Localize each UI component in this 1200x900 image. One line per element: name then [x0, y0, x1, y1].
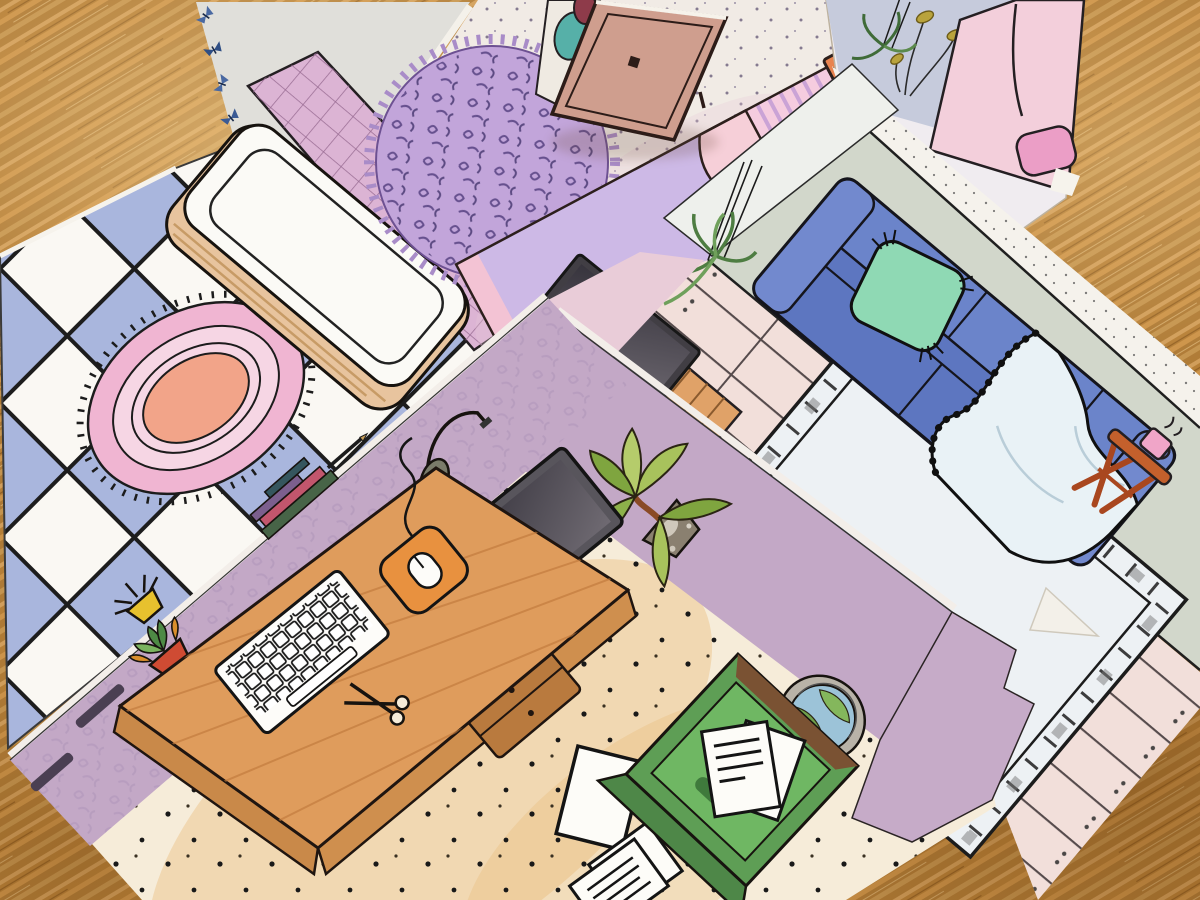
dollhouse-photo [0, 0, 1200, 900]
wardrobe [536, 0, 726, 160]
papercraft-scene [0, 0, 1200, 900]
